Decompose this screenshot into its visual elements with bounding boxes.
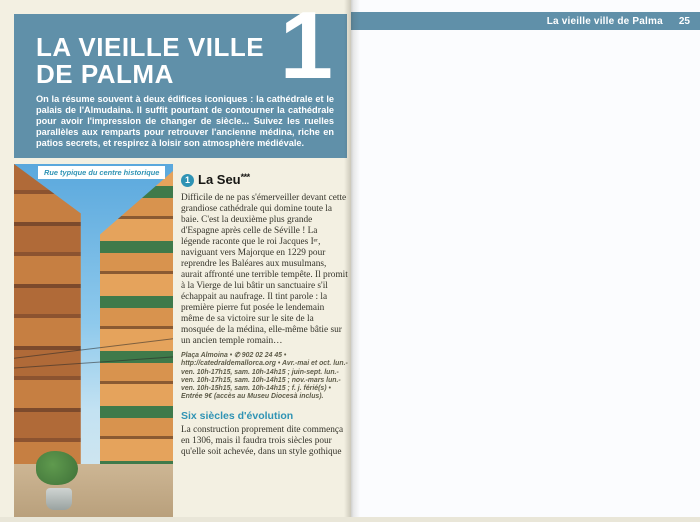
body-paragraph-2: La construction proprement dite commença… bbox=[181, 425, 348, 458]
sight-heading-stars: *** bbox=[241, 172, 250, 182]
chapter-title-line1: LA VIEILLE VILLE bbox=[36, 34, 264, 61]
page-title: La vieille ville de Palma bbox=[547, 16, 663, 27]
page-number: 25 bbox=[679, 16, 690, 27]
sight-heading-text: La Seu bbox=[198, 172, 241, 187]
chapter-number: 1 bbox=[280, 0, 333, 94]
practical-info: Plaça Almoina • ✆ 902 02 24 45 • http://… bbox=[181, 352, 348, 402]
page-header-bar: La vieille ville de Palma 25 bbox=[351, 12, 700, 30]
left-page: LA VIEILLE VILLE DE PALMA 1 On la résume… bbox=[0, 0, 351, 517]
chapter-title-line2: DE PALMA bbox=[36, 61, 264, 88]
chapter-title: LA VIEILLE VILLE DE PALMA bbox=[36, 34, 264, 88]
photo-plant bbox=[36, 451, 78, 485]
chapter-header: LA VIEILLE VILLE DE PALMA 1 On la résume… bbox=[14, 14, 347, 158]
right-page: La BalangueraMiquel Sants OliverRafael R… bbox=[351, 0, 700, 517]
photo-caption: Rue typique du centre historique bbox=[38, 166, 165, 179]
street-photo bbox=[14, 164, 173, 517]
chapter-intro: On la résume souvent à deux édifices ico… bbox=[36, 94, 334, 149]
subheading: Six siècles d'évolution bbox=[181, 410, 348, 422]
sight-number-badge: 1 bbox=[181, 174, 194, 187]
body-paragraph-1: Difficile de ne pas s'émerveiller devant… bbox=[181, 193, 348, 347]
photo-plant-pot bbox=[46, 488, 72, 510]
article-column: 1La Seu*** Difficile de ne pas s'émervei… bbox=[181, 172, 348, 458]
sight-heading: 1La Seu*** bbox=[181, 172, 348, 187]
